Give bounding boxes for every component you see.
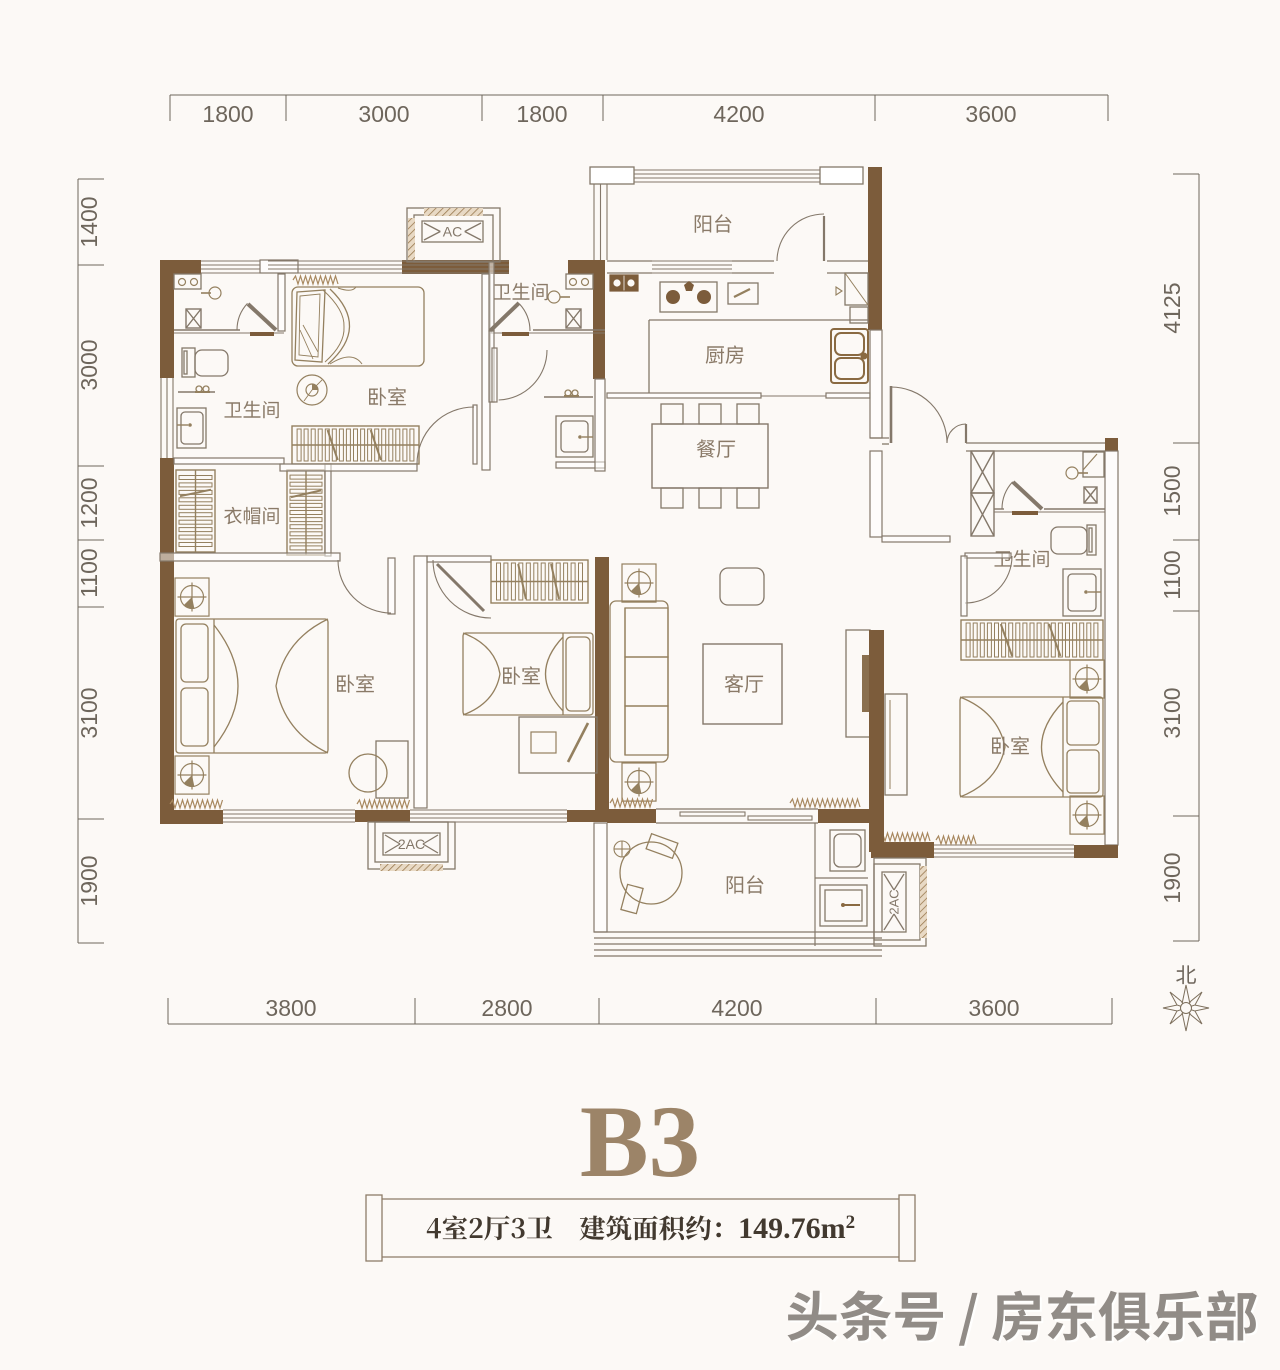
svg-text:3800: 3800 <box>265 995 316 1021</box>
svg-text:B3: B3 <box>580 1085 700 1199</box>
svg-text:1400: 1400 <box>76 196 102 247</box>
svg-text:1800: 1800 <box>516 101 567 127</box>
svg-text:3000: 3000 <box>358 101 409 127</box>
svg-text:1100: 1100 <box>1159 550 1185 599</box>
svg-text:4125: 4125 <box>1159 282 1185 333</box>
svg-text:3000: 3000 <box>76 339 102 390</box>
svg-text:3100: 3100 <box>1159 687 1185 738</box>
svg-text:149.76m2: 149.76m2 <box>738 1212 855 1245</box>
svg-text:1500: 1500 <box>1159 465 1185 516</box>
svg-text:2800: 2800 <box>481 995 532 1021</box>
svg-text:2AC: 2AC <box>887 889 902 914</box>
svg-text:AC: AC <box>443 224 462 240</box>
svg-text:1100: 1100 <box>76 548 102 597</box>
svg-text:2AC: 2AC <box>398 836 425 852</box>
svg-text:1900: 1900 <box>1159 852 1185 903</box>
svg-text:1800: 1800 <box>202 101 253 127</box>
svg-text:4200: 4200 <box>711 995 762 1021</box>
svg-text:1200: 1200 <box>76 477 102 528</box>
svg-text:4200: 4200 <box>713 101 764 127</box>
svg-text:1900: 1900 <box>76 855 102 906</box>
svg-text:3600: 3600 <box>968 995 1019 1021</box>
svg-text:3600: 3600 <box>965 101 1016 127</box>
svg-text:3100: 3100 <box>76 687 102 738</box>
